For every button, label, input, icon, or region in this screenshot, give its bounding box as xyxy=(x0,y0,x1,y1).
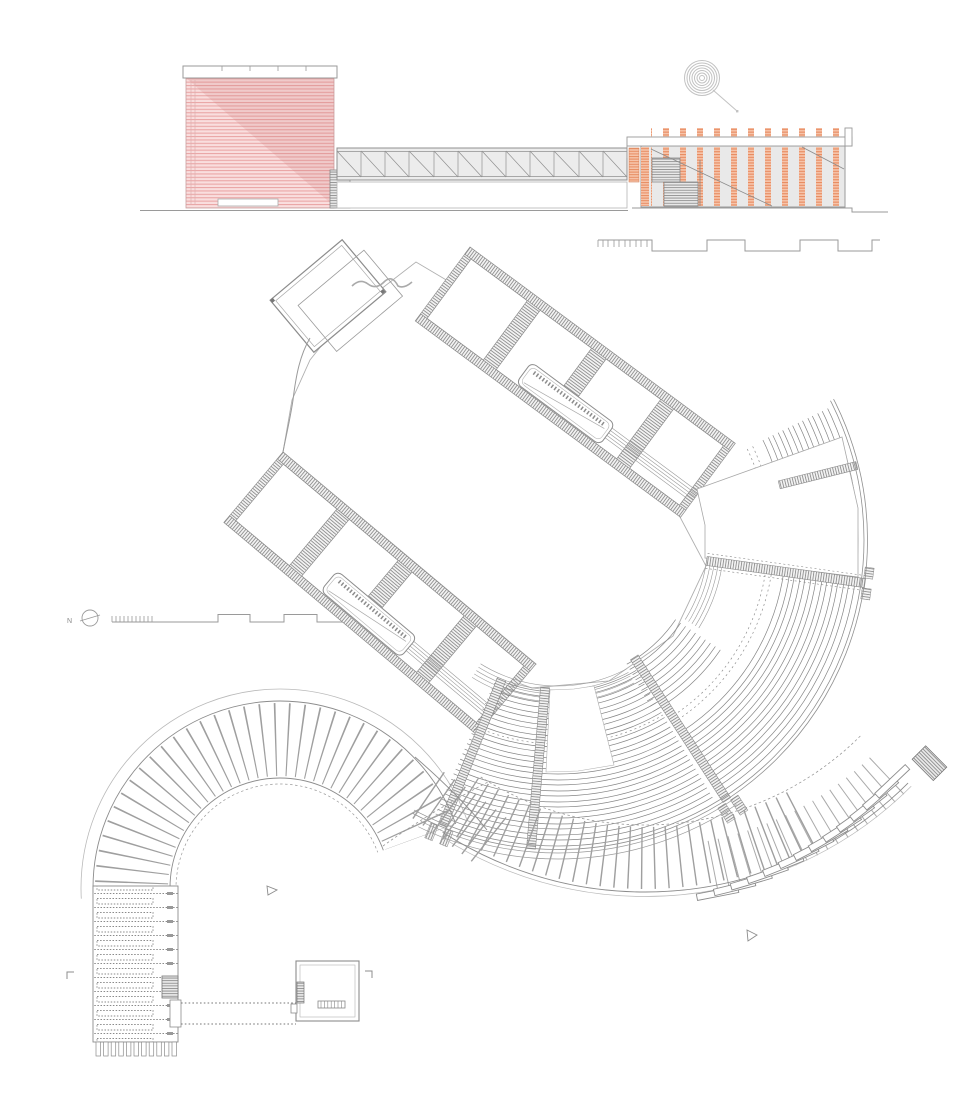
boardwalk-tail xyxy=(93,886,181,1056)
bridge-deck-outline xyxy=(337,182,627,208)
tail-teeth xyxy=(96,1042,177,1056)
stair-flight-upper xyxy=(652,158,680,182)
right-parapet xyxy=(845,128,852,146)
stair-flight-lower xyxy=(664,182,698,206)
drawing-sheet: N xyxy=(0,0,969,1100)
door-slot xyxy=(218,199,278,206)
tail-stair xyxy=(162,976,178,998)
junction-post xyxy=(629,148,639,182)
tail-notch xyxy=(170,1000,181,1027)
north-label: N xyxy=(67,618,72,625)
roof-posts xyxy=(651,128,841,137)
louvered-pavilion-elevation xyxy=(183,66,350,208)
kiosk-wall-hatch xyxy=(297,982,304,1003)
striped-hall-elevation xyxy=(627,128,852,207)
truss-footbridge xyxy=(337,148,627,208)
hall-roof-slab xyxy=(627,137,852,146)
kiosk-door-step xyxy=(291,1004,297,1013)
kiosk-ladder xyxy=(318,1001,345,1008)
drawing-canvas: N xyxy=(0,0,969,1100)
roof-slab xyxy=(183,66,337,78)
